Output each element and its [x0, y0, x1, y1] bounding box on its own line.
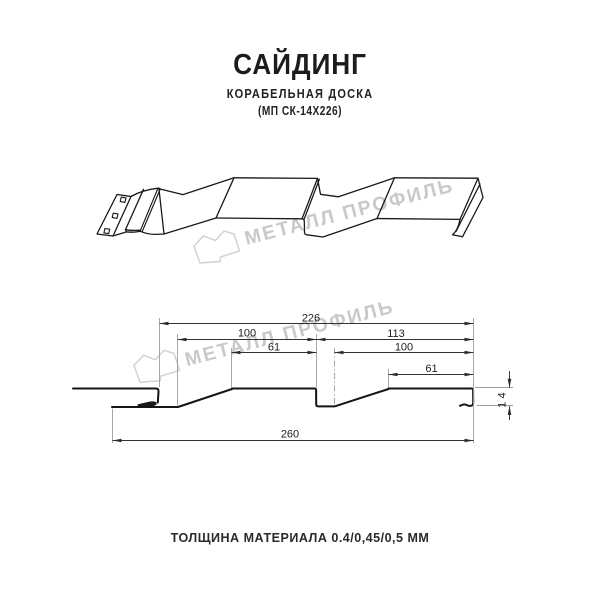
- svg-text:226: 226: [302, 313, 320, 325]
- svg-text:113: 113: [387, 328, 405, 340]
- svg-text:100: 100: [238, 328, 256, 340]
- svg-text:260: 260: [281, 429, 299, 441]
- svg-text:14: 14: [497, 389, 509, 408]
- svg-text:МЕТАЛЛ ПРОФИЛЬ: МЕТАЛЛ ПРОФИЛЬ: [183, 296, 397, 371]
- svg-text:61: 61: [268, 342, 280, 354]
- svg-text:100: 100: [395, 342, 413, 354]
- svg-text:МЕТАЛЛ ПРОФИЛЬ: МЕТАЛЛ ПРОФИЛЬ: [242, 175, 456, 250]
- svg-text:61: 61: [425, 363, 437, 375]
